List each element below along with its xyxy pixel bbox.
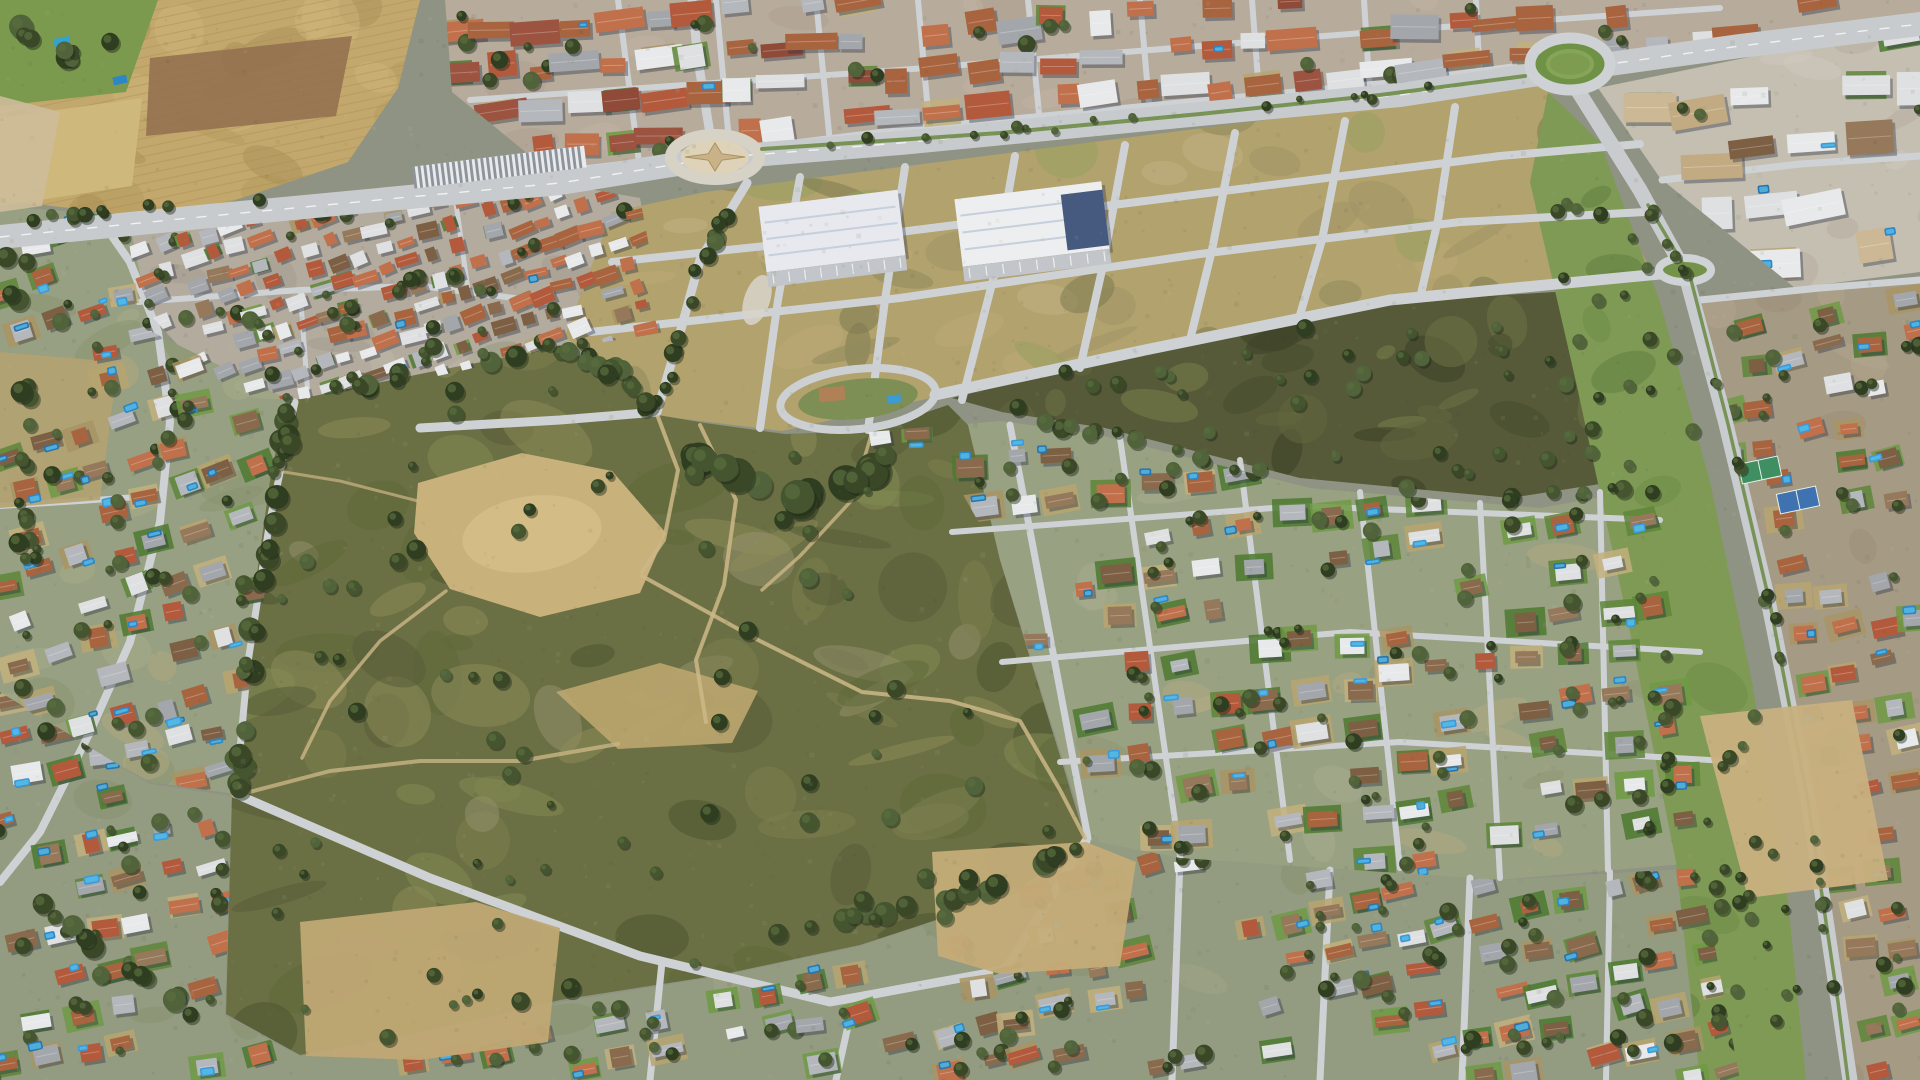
aerial-photo: Oblique aerial photograph of a Mediterra… bbox=[0, 0, 1920, 1080]
satellite-image bbox=[0, 0, 1920, 1080]
big-box-store bbox=[759, 189, 911, 287]
